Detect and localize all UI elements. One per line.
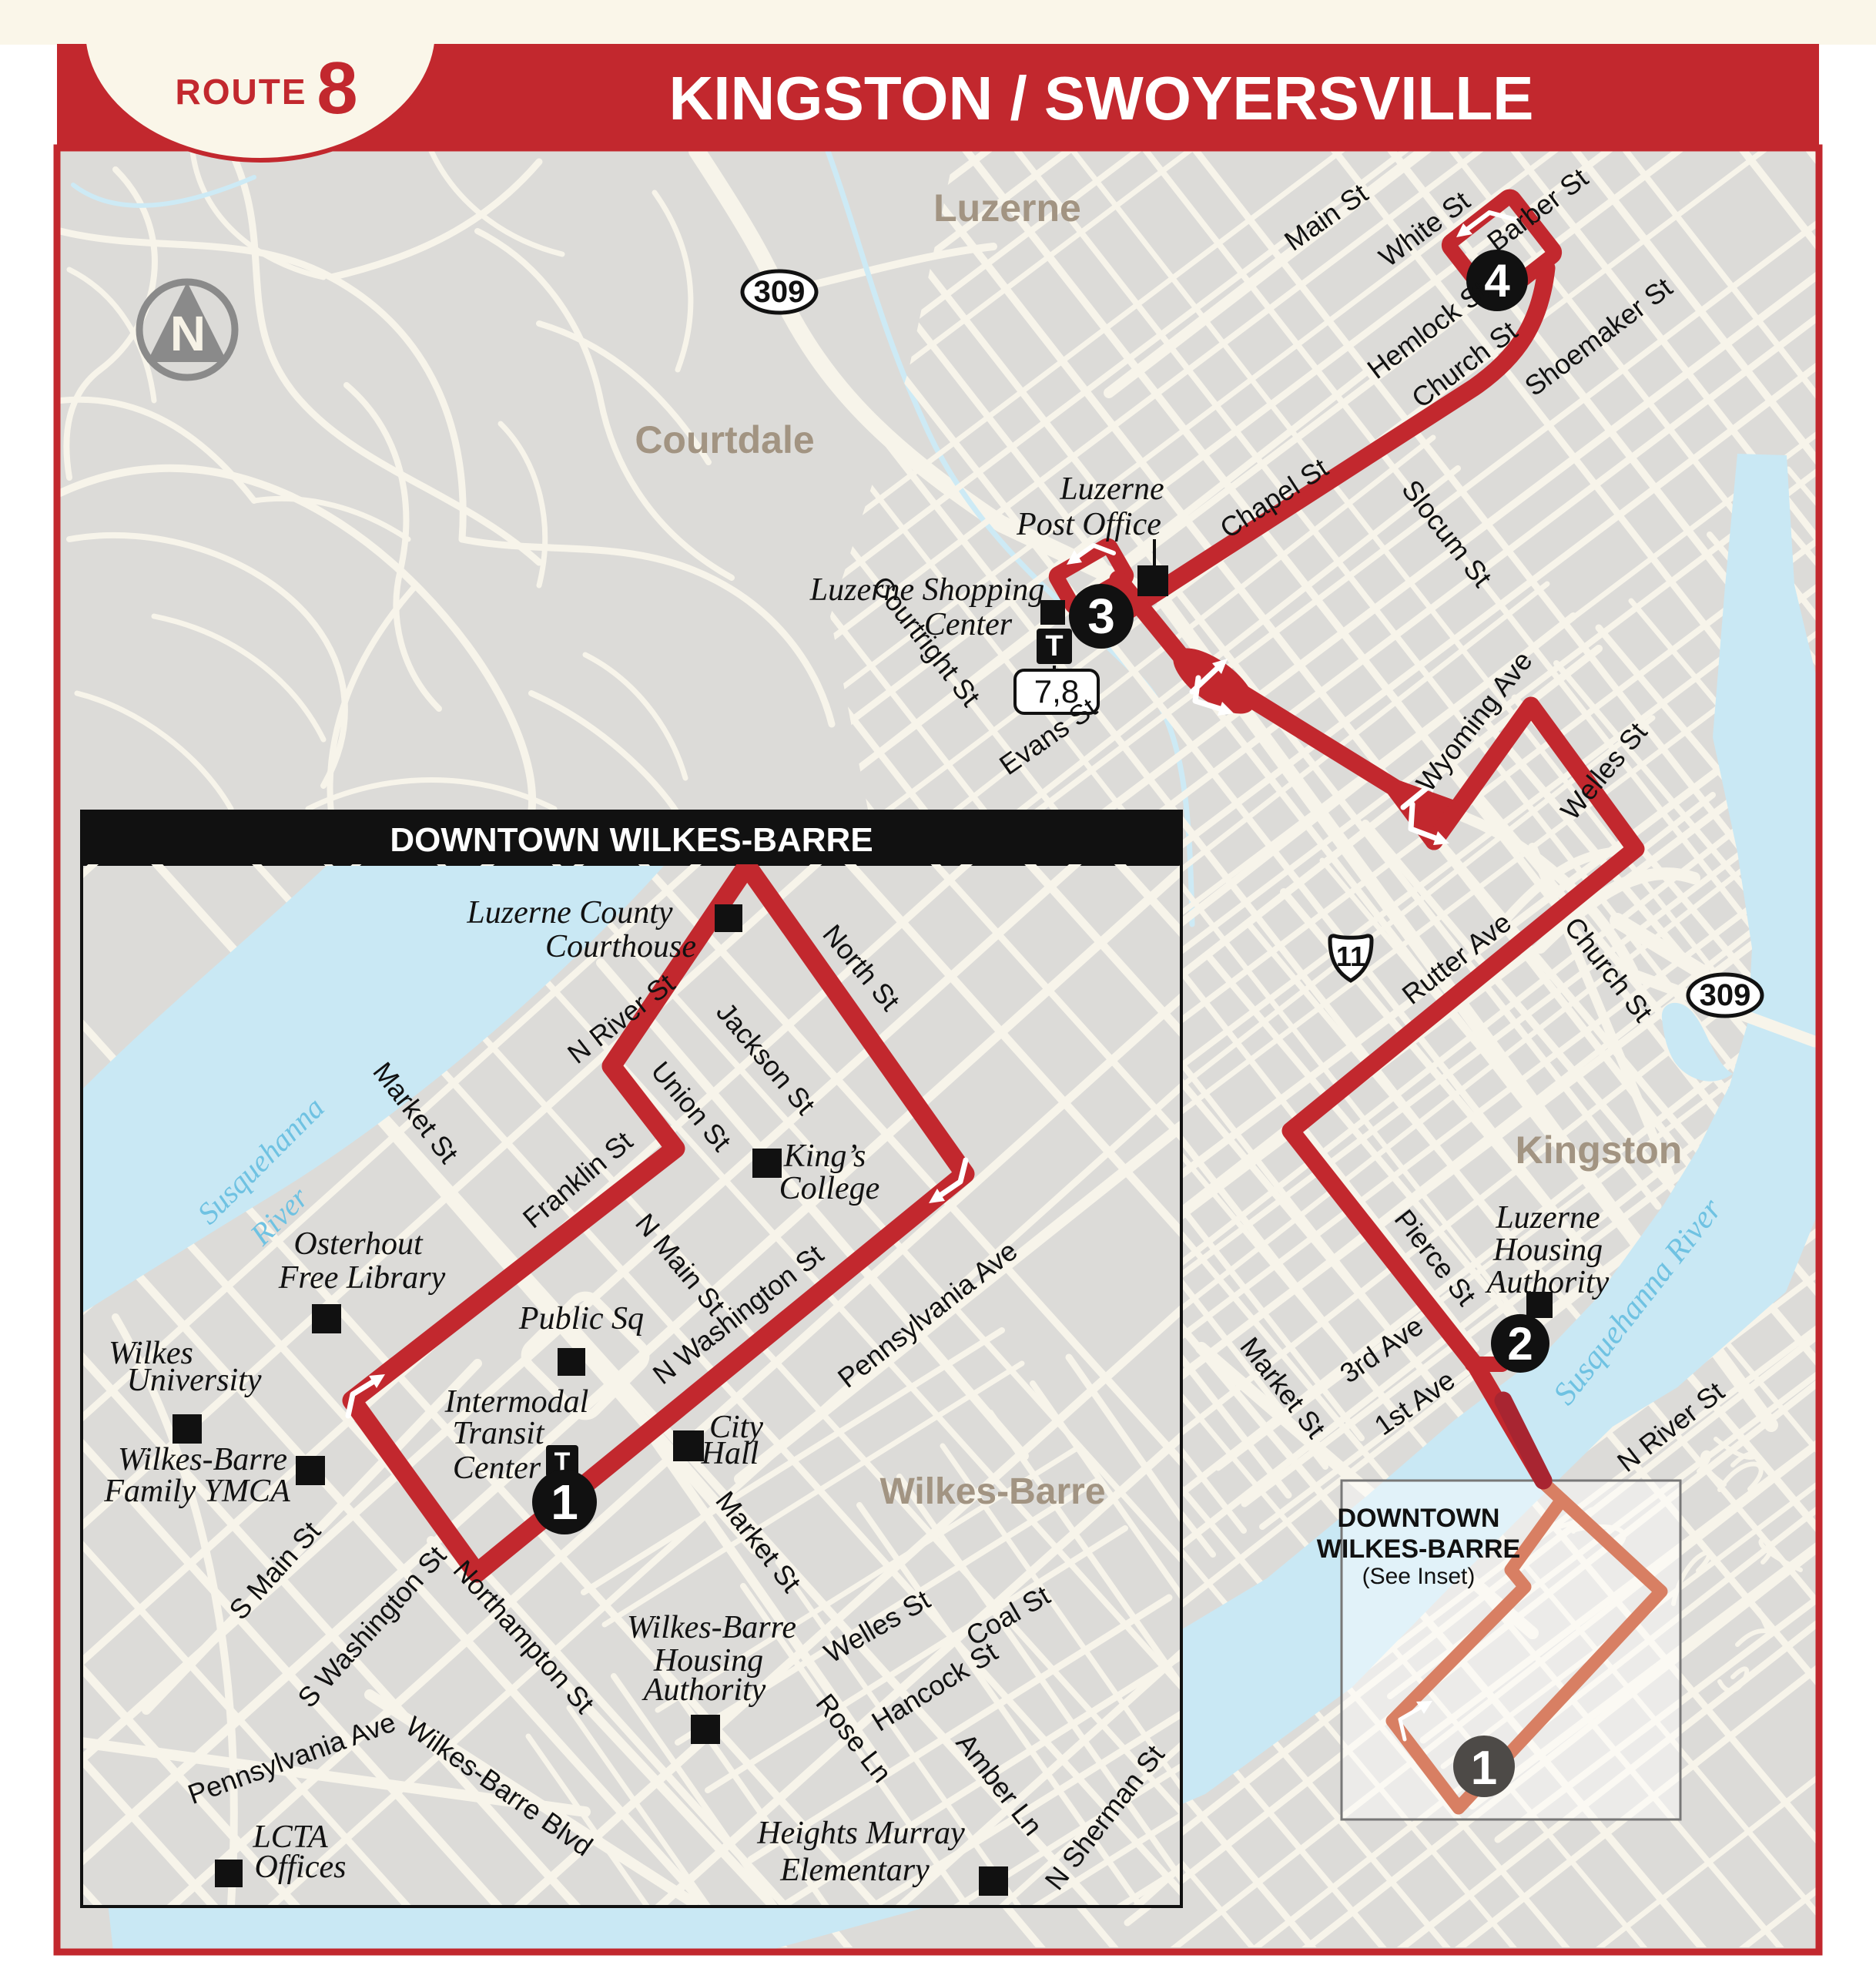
svg-text:University: University: [127, 1363, 262, 1398]
svg-text:Elementary: Elementary: [779, 1853, 930, 1888]
svg-text:Heights Murray: Heights Murray: [756, 1816, 965, 1851]
svg-text:DOWNTOWN: DOWNTOWN: [1338, 1504, 1500, 1533]
svg-text:Intermodal: Intermodal: [444, 1384, 589, 1420]
svg-text:Luzerne: Luzerne: [1059, 471, 1164, 507]
svg-text:1: 1: [551, 1474, 578, 1530]
svg-text:2: 2: [1507, 1318, 1533, 1370]
svg-text:Free Library: Free Library: [278, 1260, 446, 1296]
svg-text:Housing: Housing: [1492, 1232, 1603, 1268]
svg-text:DOWNTOWN WILKES-BARRE: DOWNTOWN WILKES-BARRE: [390, 821, 873, 859]
svg-text:Transit: Transit: [452, 1416, 544, 1451]
svg-text:T: T: [1045, 630, 1063, 662]
svg-text:WILKES-BARRE: WILKES-BARRE: [1317, 1534, 1520, 1564]
svg-text:Luzerne: Luzerne: [933, 186, 1081, 230]
svg-text:Wilkes-Barre: Wilkes-Barre: [627, 1610, 796, 1645]
svg-text:Osterhout: Osterhout: [293, 1226, 424, 1262]
svg-text:Center: Center: [453, 1450, 541, 1486]
svg-text:Hall: Hall: [701, 1436, 759, 1471]
svg-text:College: College: [779, 1171, 880, 1206]
svg-text:Luzerne: Luzerne: [1495, 1200, 1600, 1236]
svg-text:Center: Center: [924, 607, 1013, 642]
svg-text:Offices: Offices: [255, 1850, 347, 1885]
svg-text:3: 3: [1087, 589, 1115, 644]
svg-text:Courthouse: Courthouse: [545, 929, 696, 964]
svg-text:N: N: [170, 306, 206, 361]
svg-text:8: 8: [317, 47, 357, 129]
svg-text:(See Inset): (See Inset): [1362, 1564, 1476, 1589]
svg-text:Luzerne Shopping: Luzerne Shopping: [809, 572, 1045, 608]
svg-text:11: 11: [1336, 941, 1365, 972]
svg-text:Wilkes-Barre: Wilkes-Barre: [879, 1471, 1105, 1512]
svg-text:Luzerne County: Luzerne County: [466, 895, 673, 931]
svg-text:Wilkes-Barre: Wilkes-Barre: [118, 1442, 287, 1477]
svg-text:Post Office: Post Office: [1016, 507, 1161, 542]
svg-text:Courtdale: Courtdale: [635, 418, 814, 461]
svg-text:KINGSTON / SWOYERSVILLE: KINGSTON / SWOYERSVILLE: [668, 64, 1533, 132]
svg-text:309: 309: [1700, 978, 1751, 1012]
svg-text:Authority: Authority: [1485, 1265, 1610, 1300]
svg-text:309: 309: [754, 275, 806, 309]
svg-text:Authority: Authority: [642, 1672, 766, 1708]
svg-text:King’s: King’s: [783, 1139, 866, 1174]
svg-text:1: 1: [1471, 1742, 1497, 1795]
svg-text:Kingston: Kingston: [1516, 1129, 1683, 1172]
svg-text:ROUTE: ROUTE: [176, 72, 307, 112]
svg-text:Public Sq: Public Sq: [518, 1301, 644, 1336]
svg-text:Family YMCA: Family YMCA: [103, 1474, 290, 1509]
